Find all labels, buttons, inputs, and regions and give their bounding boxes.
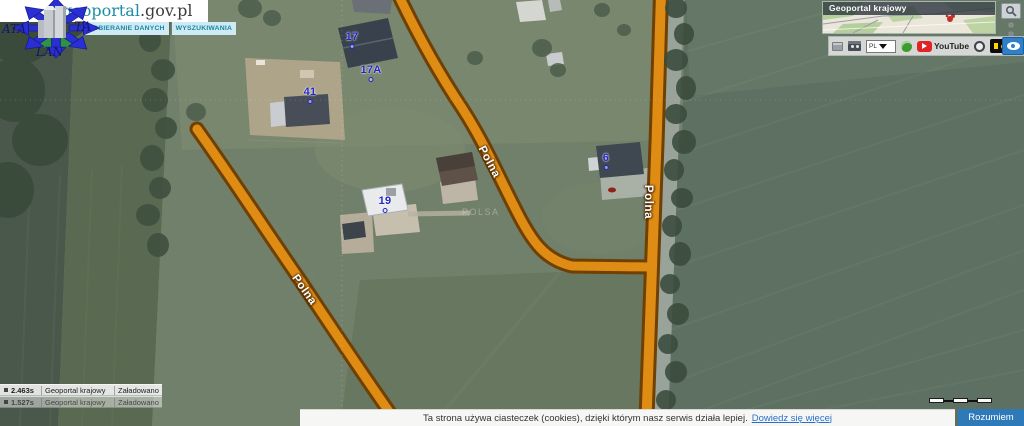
scale-segment: [968, 400, 977, 402]
house-19-roof: [362, 184, 408, 216]
brand-suffix: .gov.pl: [140, 1, 193, 20]
magnifier-icon: [1005, 5, 1017, 17]
cookie-banner: Ta strona używa ciasteczek (cookies), dz…: [300, 409, 955, 426]
roof-window: [386, 188, 396, 196]
house-41-roof: [284, 94, 330, 127]
chevron-down-icon: [879, 44, 887, 49]
help-icon[interactable]: [901, 41, 912, 52]
eye-icon: [1007, 42, 1020, 50]
imagery-watermark: POLSA: [462, 207, 500, 217]
red-car: [608, 188, 616, 193]
scale-bar: [929, 398, 992, 403]
load-state: Załadowano: [114, 386, 162, 395]
youtube-play-icon: [917, 41, 932, 52]
visibility-panel-button[interactable]: [1002, 37, 1024, 55]
scale-segment: [944, 400, 953, 402]
language-select[interactable]: PL: [866, 40, 896, 53]
logo-frag-left: ATA: [1, 22, 26, 36]
geoportal-map-viewport: 17 17A 41 19 6 Polna Polna Polna POLSA g…: [0, 0, 1024, 426]
map-toolbar: PL YouTube: [828, 36, 1024, 56]
minimap-resize-handle[interactable]: [1007, 23, 1015, 36]
language-value: PL: [869, 43, 877, 50]
youtube-label: YouTube: [934, 41, 969, 51]
scale-segment: [977, 398, 992, 403]
load-time: 2.463s: [11, 386, 41, 395]
scale-segment: [953, 398, 968, 403]
house-6-roof: [596, 142, 644, 178]
logo-frag-bottom: LAN: [35, 45, 64, 59]
logo-frag-right: TA: [74, 20, 91, 35]
camera-icon[interactable]: [848, 41, 861, 51]
print-icon[interactable]: [832, 42, 843, 51]
load-state: Załadowano: [114, 398, 162, 407]
magnifier-button[interactable]: [1001, 3, 1021, 19]
layer-name: Geoportal krajowy: [41, 398, 114, 407]
compass-logo: ATA TA LAN: [0, 0, 118, 62]
minimap-title: Geoportal krajowy: [823, 2, 995, 15]
shed-roof: [342, 221, 366, 240]
minimap[interactable]: Geoportal krajowy: [823, 2, 995, 33]
status-row: 2.463s Geoportal krajowy Załadowano: [0, 384, 162, 396]
building-roof: [516, 0, 546, 22]
building-roof: [352, 0, 392, 14]
contrast-a-icon: [994, 43, 998, 49]
footpath: [408, 213, 470, 214]
cookie-accept-button[interactable]: Rozumiem: [958, 409, 1024, 426]
menu-wyszukiwania[interactable]: WYSZUKIWANIA: [172, 22, 236, 35]
status-bullet-icon: [4, 388, 8, 392]
building-roof: [548, 0, 562, 12]
cookie-message: Ta strona używa ciasteczek (cookies), dz…: [423, 413, 748, 424]
cookie-learn-more-link[interactable]: Dowiedz się więcej: [752, 413, 832, 424]
load-time: 1.527s: [11, 398, 41, 407]
scale-segment: [929, 398, 944, 403]
map-canvas[interactable]: [0, 0, 1024, 426]
status-bullet-icon: [4, 400, 8, 404]
material-pile: [256, 60, 265, 65]
material-pile: [300, 70, 314, 78]
accessibility-icon[interactable]: [974, 41, 985, 52]
layer-name: Geoportal krajowy: [41, 386, 114, 395]
status-row: 1.527s Geoportal krajowy Załadowano: [0, 396, 162, 408]
house-41-wing: [270, 101, 287, 127]
youtube-link[interactable]: YouTube: [917, 41, 969, 52]
house-6-wing: [588, 157, 599, 171]
layer-loading-status: 2.463s Geoportal krajowy Załadowano 1.52…: [0, 384, 162, 408]
